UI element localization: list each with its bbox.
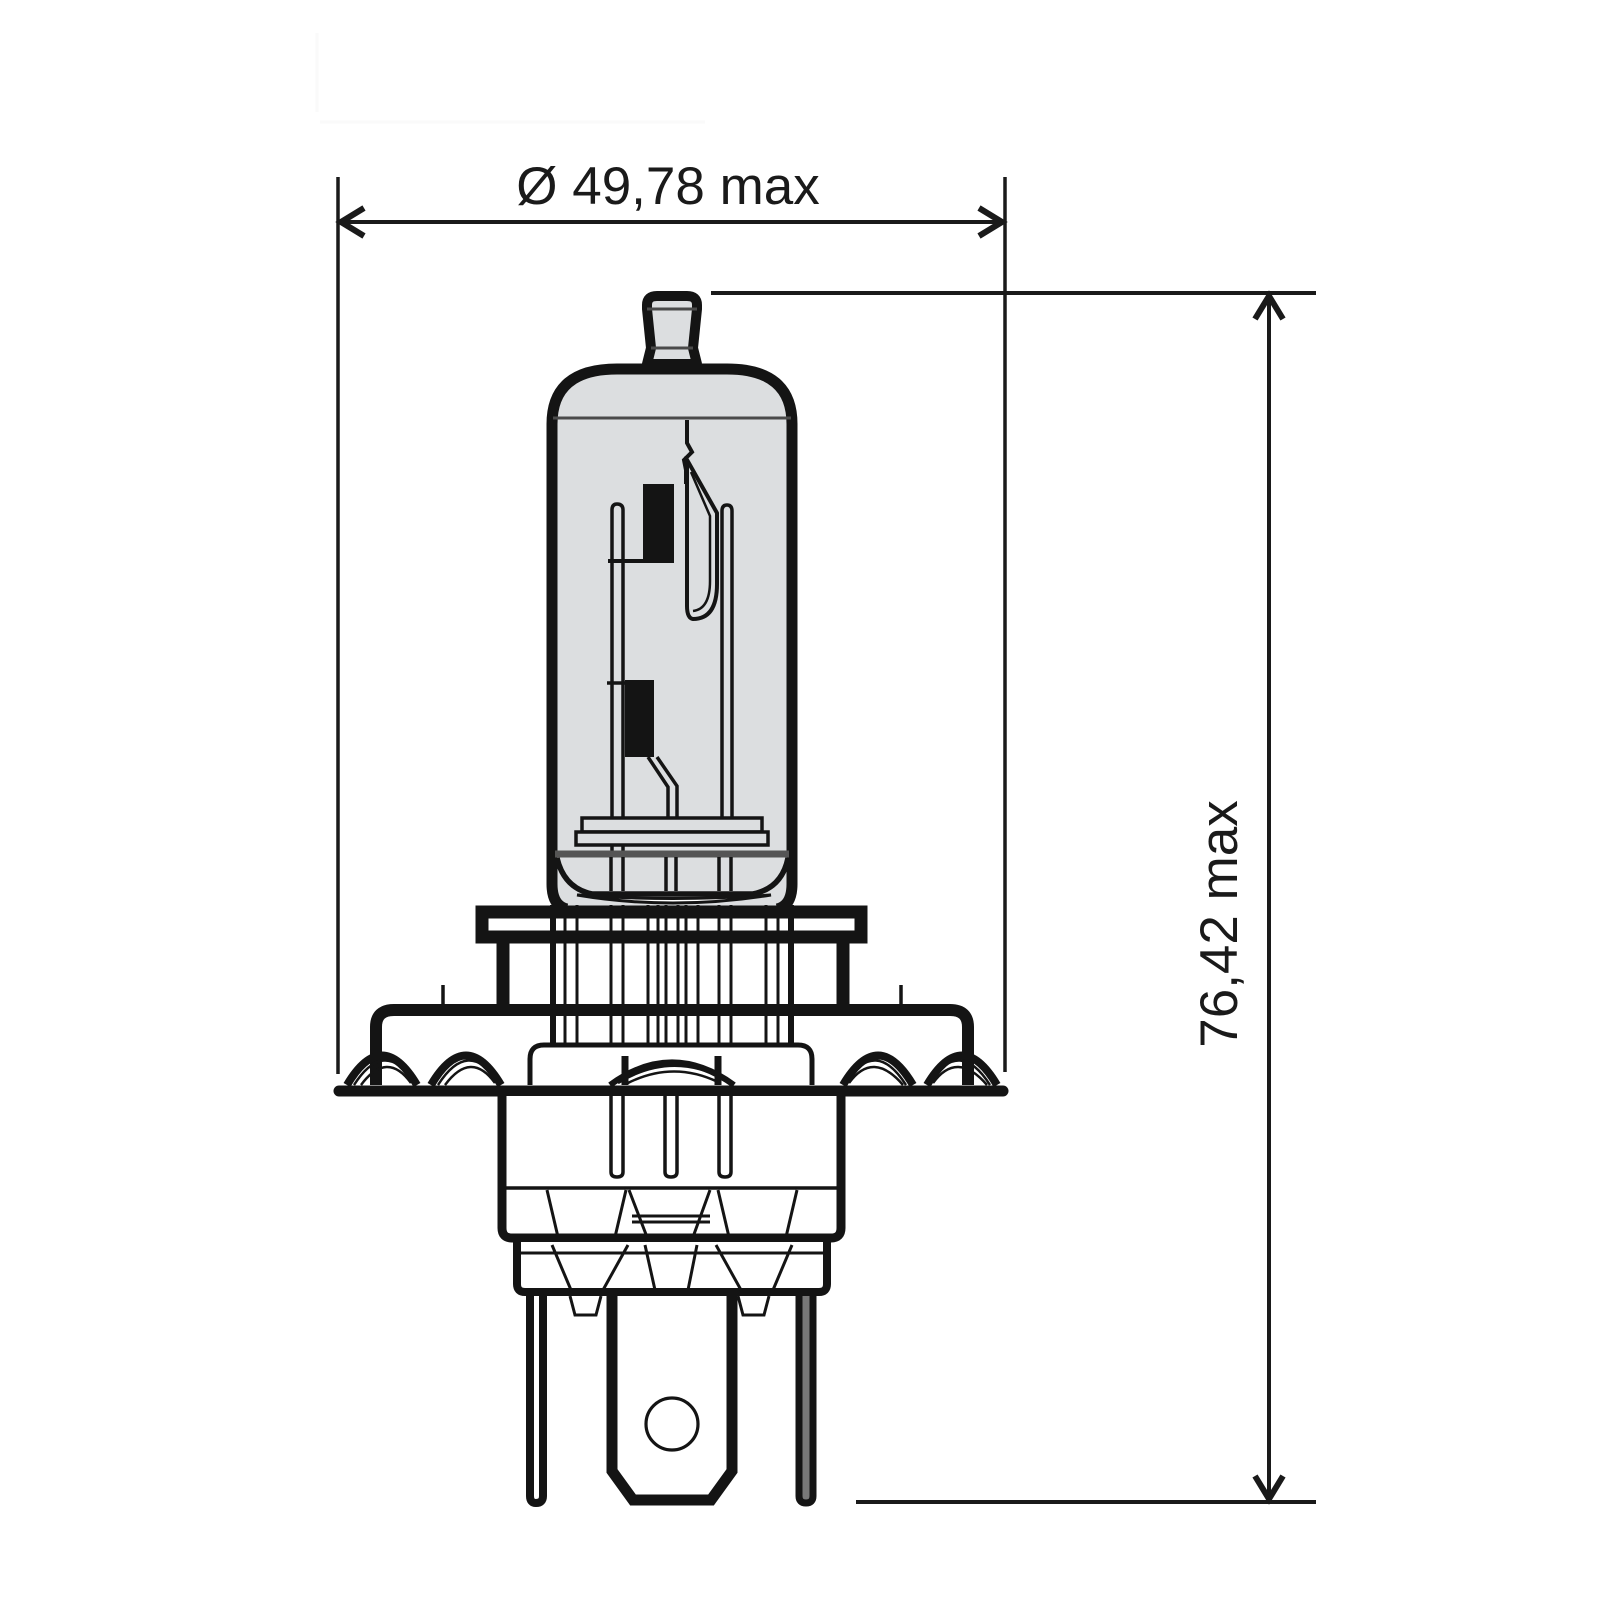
svg-text:76,42 max: 76,42 max	[1190, 800, 1249, 1047]
svg-text:Ø 49,78 max: Ø 49,78 max	[516, 157, 819, 216]
